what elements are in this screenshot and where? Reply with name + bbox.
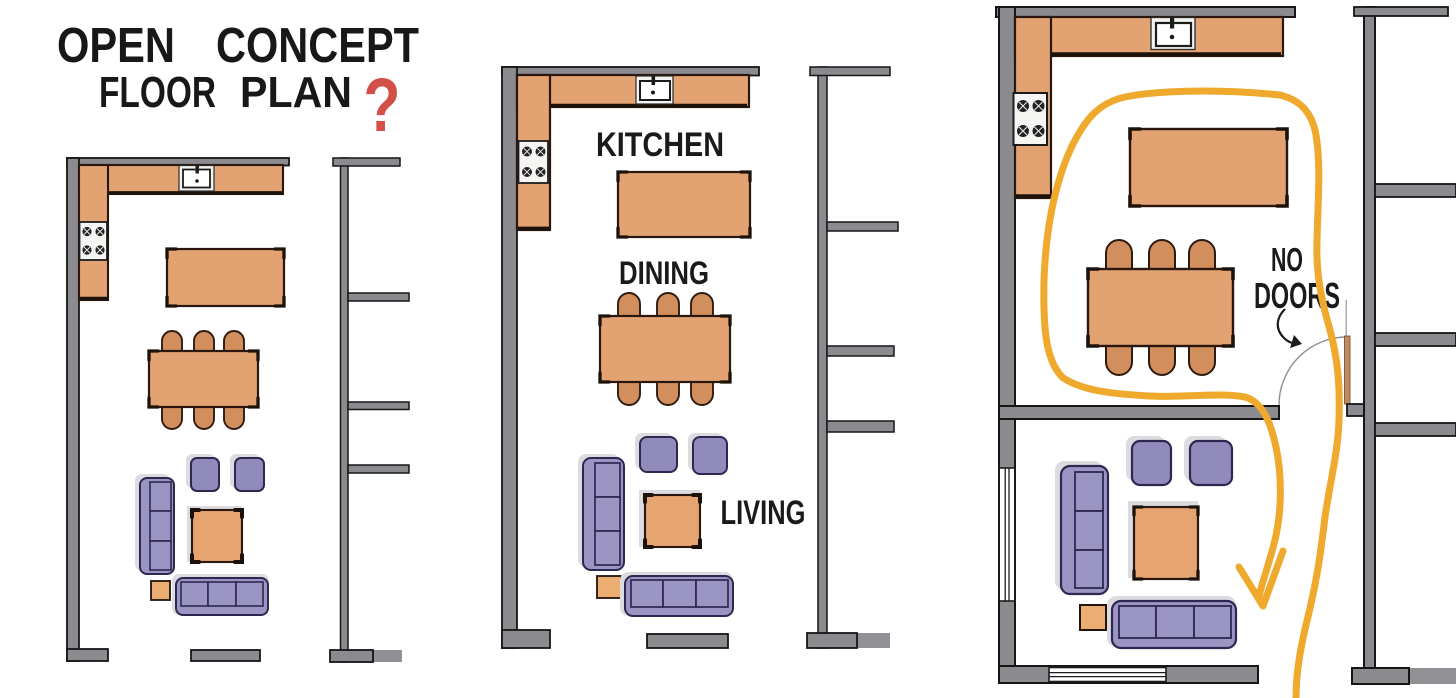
svg-text:NO: NO [1271, 241, 1303, 278]
svg-text:KITCHEN: KITCHEN [596, 126, 724, 164]
svg-text:FLOOR: FLOOR [99, 68, 216, 117]
svg-text:LIVING: LIVING [721, 494, 806, 532]
svg-text:OPEN: OPEN [57, 19, 175, 73]
svg-text:PLAN: PLAN [240, 68, 352, 117]
svg-text:DINING: DINING [619, 255, 709, 291]
svg-text:?: ? [363, 63, 400, 148]
